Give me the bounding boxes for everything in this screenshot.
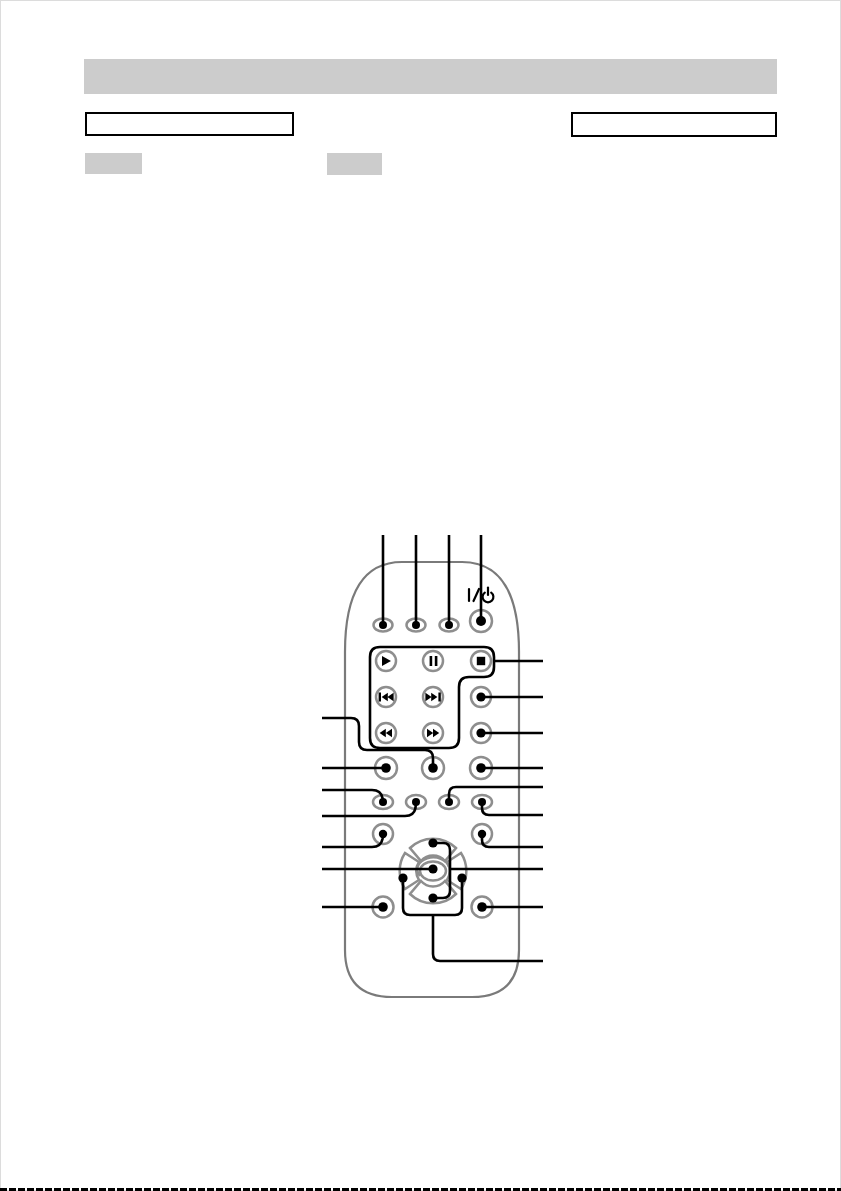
callout-dot xyxy=(379,830,387,838)
callout-dot xyxy=(428,838,437,847)
callout-dot xyxy=(428,864,437,873)
model-badge-1 xyxy=(85,153,142,174)
model-badge-2 xyxy=(327,153,382,175)
callout-dot xyxy=(379,798,387,806)
stop-icon xyxy=(477,657,485,665)
callout-dot xyxy=(476,728,485,737)
callout-dot xyxy=(412,798,420,806)
callout-dot xyxy=(412,621,420,629)
remote-control-diagram xyxy=(300,520,560,1010)
pause-button xyxy=(423,651,443,671)
callout-dot xyxy=(378,902,388,912)
manual-page: I/⏻ xyxy=(0,0,841,1191)
callout-dot xyxy=(457,873,466,882)
pause-icon-bar2 xyxy=(435,656,438,666)
callout-dot xyxy=(445,798,453,806)
pause-icon xyxy=(430,656,433,666)
callout-dot xyxy=(428,763,438,773)
callout-dot xyxy=(478,798,486,806)
callout-dot xyxy=(478,830,486,838)
callout-dot xyxy=(445,621,453,629)
callout-dot xyxy=(477,902,487,912)
callout-dot xyxy=(428,893,437,902)
remote-control-figure: I/⏻ xyxy=(300,520,560,1010)
section-title-box-left xyxy=(85,112,294,136)
callout-dot xyxy=(379,621,387,629)
callout-dot xyxy=(398,873,407,882)
section-title-box-right xyxy=(571,112,777,137)
callout-dot xyxy=(381,763,391,773)
callout-dot xyxy=(476,763,486,773)
callout-dot xyxy=(476,692,485,701)
callout-dot xyxy=(476,616,486,626)
page-header-bar xyxy=(84,59,777,94)
